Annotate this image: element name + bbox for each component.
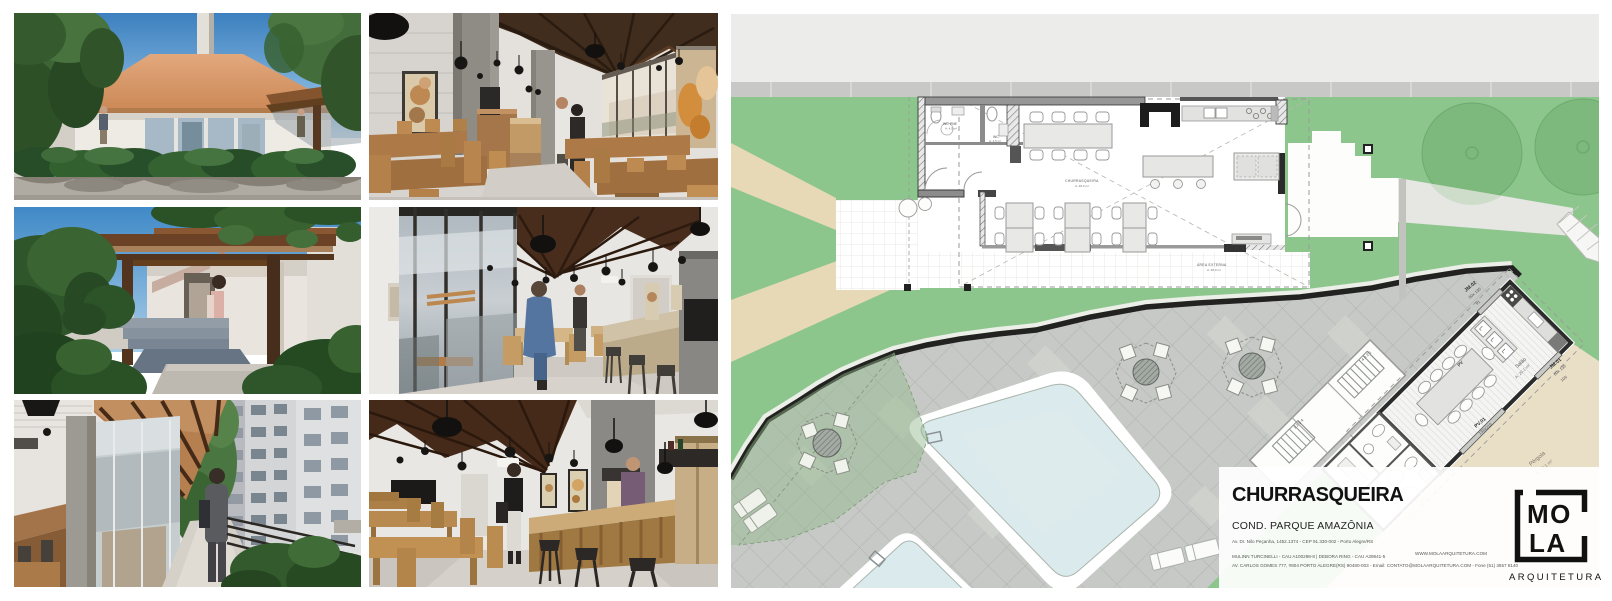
svg-text:A: 2,5 m²: A: 2,5 m² [989, 139, 1001, 143]
svg-text:A: 48,0 m²: A: 48,0 m² [1075, 184, 1089, 188]
svg-text:A: 48,0 m²: A: 48,0 m² [1207, 268, 1221, 272]
svg-text:MO: MO [1527, 499, 1572, 529]
svg-text:ARQUITETURA: ARQUITETURA [1509, 572, 1604, 583]
svg-text:CHURRASQUEIRA: CHURRASQUEIRA [1065, 179, 1099, 183]
svg-text:A: 4,5 m²: A: 4,5 m² [945, 127, 957, 131]
svg-text:LA: LA [1529, 528, 1567, 558]
svg-text:ÁREA EXTERNA: ÁREA EXTERNA [1197, 263, 1227, 267]
svg-text:WC PNE: WC PNE [943, 122, 958, 126]
